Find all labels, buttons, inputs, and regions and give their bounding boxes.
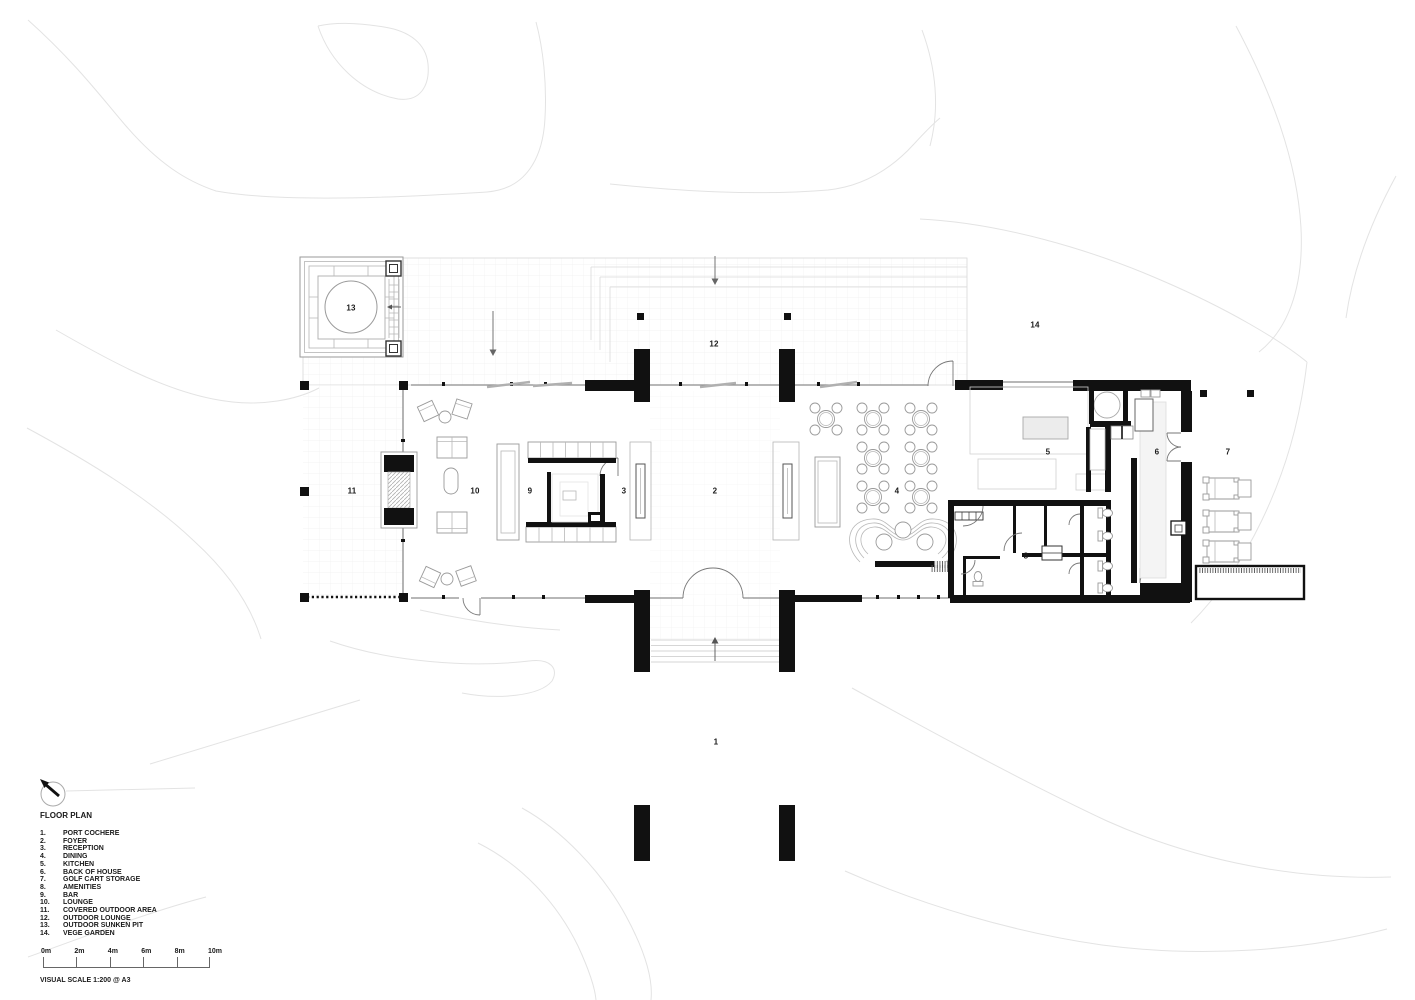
room-label-vege-garden: 14 (1030, 321, 1039, 330)
legend-item: 9.BAR (40, 892, 157, 900)
legend-item: 1.PORT COCHERE (40, 830, 157, 838)
scale-tick (110, 957, 111, 967)
drawing-title: FLOOR PLAN (40, 811, 157, 820)
room-label-port-cochere: 1 (714, 738, 719, 747)
scale-label-4m: 4m (108, 948, 118, 955)
legend-item: 4.DINING (40, 853, 157, 861)
scale-note: VISUAL SCALE 1:200 @ A3 (40, 977, 130, 984)
legend-item-number: 11. (40, 907, 63, 915)
legend-item: 8.AMENITIES (40, 884, 157, 892)
north-arrow-icon (40, 779, 65, 806)
amenities-fixtures (930, 500, 1113, 598)
legend-item-number: 5. (40, 861, 63, 869)
legend-item-label: COVERED OUTDOOR AREA (63, 907, 157, 915)
legend-item: 11.COVERED OUTDOOR AREA (40, 907, 157, 915)
room-label-dining: 4 (895, 487, 900, 496)
legend-item-number: 1. (40, 830, 63, 838)
legend-item-number: 9. (40, 892, 63, 900)
legend-item: 2.FOYER (40, 838, 157, 846)
room-label-outdoor-lounge: 12 (709, 340, 718, 349)
legend-item-number: 2. (40, 838, 63, 846)
entry-steps (651, 637, 779, 662)
legend-list: 1.PORT COCHERE2.FOYER3.RECEPTION4.DINING… (40, 830, 157, 938)
legend-item: 13.OUTDOOR SUNKEN PIT (40, 922, 157, 930)
legend-item-number: 14. (40, 930, 63, 938)
room-label-outdoor-sunken-pit: 13 (346, 304, 355, 313)
legend-item: 14.VEGE GARDEN (40, 930, 157, 938)
legend-item-label: OUTDOOR LOUNGE (63, 915, 131, 923)
boh-corridor (1131, 390, 1186, 583)
legend-item-label: PORT COCHERE (63, 830, 119, 838)
title-block: FLOOR PLAN 1.PORT COCHERE2.FOYER3.RECEPT… (40, 811, 157, 938)
room-label-lounge: 10 (470, 487, 479, 496)
legend-item-label: VEGE GARDEN (63, 930, 115, 938)
room-label-amenities: 8 (1024, 552, 1029, 561)
scale-label-2m: 2m (74, 948, 84, 955)
scale-label-6m: 6m (141, 948, 151, 955)
legend-item-label: DINING (63, 853, 88, 861)
legend-item: 6.BACK OF HOUSE (40, 869, 157, 877)
legend-item-label: AMENITIES (63, 884, 101, 892)
scale-label-8m: 8m (175, 948, 185, 955)
floor-plan-sheet: 1 2 3 4 5 6 7 8 9 10 11 12 13 14 FLOOR P… (0, 0, 1415, 1000)
room-label-reception: 3 (622, 487, 627, 496)
golf-carts (1196, 477, 1304, 599)
floor-plan-drawing (0, 0, 1415, 1000)
scale-tick (43, 957, 44, 967)
legend-item-label: BAR (63, 892, 78, 900)
legend-item-label: FOYER (63, 838, 87, 846)
dining-furniture (810, 403, 956, 568)
legend-item-number: 3. (40, 845, 63, 853)
outdoor-fireplace (381, 452, 417, 528)
scale-tick (177, 957, 178, 967)
legend-item-number: 8. (40, 884, 63, 892)
legend-item-label: KITCHEN (63, 861, 94, 869)
legend-item-number: 7. (40, 876, 63, 884)
scale-label-0m: 0m (41, 948, 51, 955)
scale-label-10m: 10m (208, 948, 222, 955)
legend-item-number: 6. (40, 869, 63, 877)
room-label-golf-cart-storage: 7 (1226, 448, 1231, 457)
scale-tick (209, 957, 210, 967)
scale-bar-line (43, 957, 210, 968)
legend-item-label: OUTDOOR SUNKEN PIT (63, 922, 143, 930)
legend-item: 3.RECEPTION (40, 845, 157, 853)
legend-item: 5.KITCHEN (40, 861, 157, 869)
legend-item: 12.OUTDOOR LOUNGE (40, 915, 157, 923)
legend-item-label: GOLF CART STORAGE (63, 876, 140, 884)
legend-item-label: BACK OF HOUSE (63, 869, 122, 877)
legend-item-number: 10. (40, 899, 63, 907)
kitchen-fixtures (970, 387, 1133, 492)
room-label-foyer: 2 (713, 487, 718, 496)
legend-item: 7.GOLF CART STORAGE (40, 876, 157, 884)
room-label-covered-outdoor-area: 11 (348, 487, 357, 496)
scale-tick (76, 957, 77, 967)
scale-bar: 0m 2m 4m 6m 8m 10m (43, 948, 210, 968)
room-label-kitchen: 5 (1046, 448, 1051, 457)
lounge-furniture (417, 399, 519, 588)
room-label-bar: 9 (528, 487, 533, 496)
legend-item-number: 4. (40, 853, 63, 861)
room-label-back-of-house: 6 (1155, 448, 1160, 457)
legend-item-label: LOUNGE (63, 899, 93, 907)
bar-counter (526, 442, 616, 542)
legend-item-label: RECEPTION (63, 845, 104, 853)
scale-tick (143, 957, 144, 967)
legend-item: 10.LOUNGE (40, 899, 157, 907)
legend-item-number: 12. (40, 915, 63, 923)
legend-item-number: 13. (40, 922, 63, 930)
serpentine-booth (850, 519, 957, 568)
